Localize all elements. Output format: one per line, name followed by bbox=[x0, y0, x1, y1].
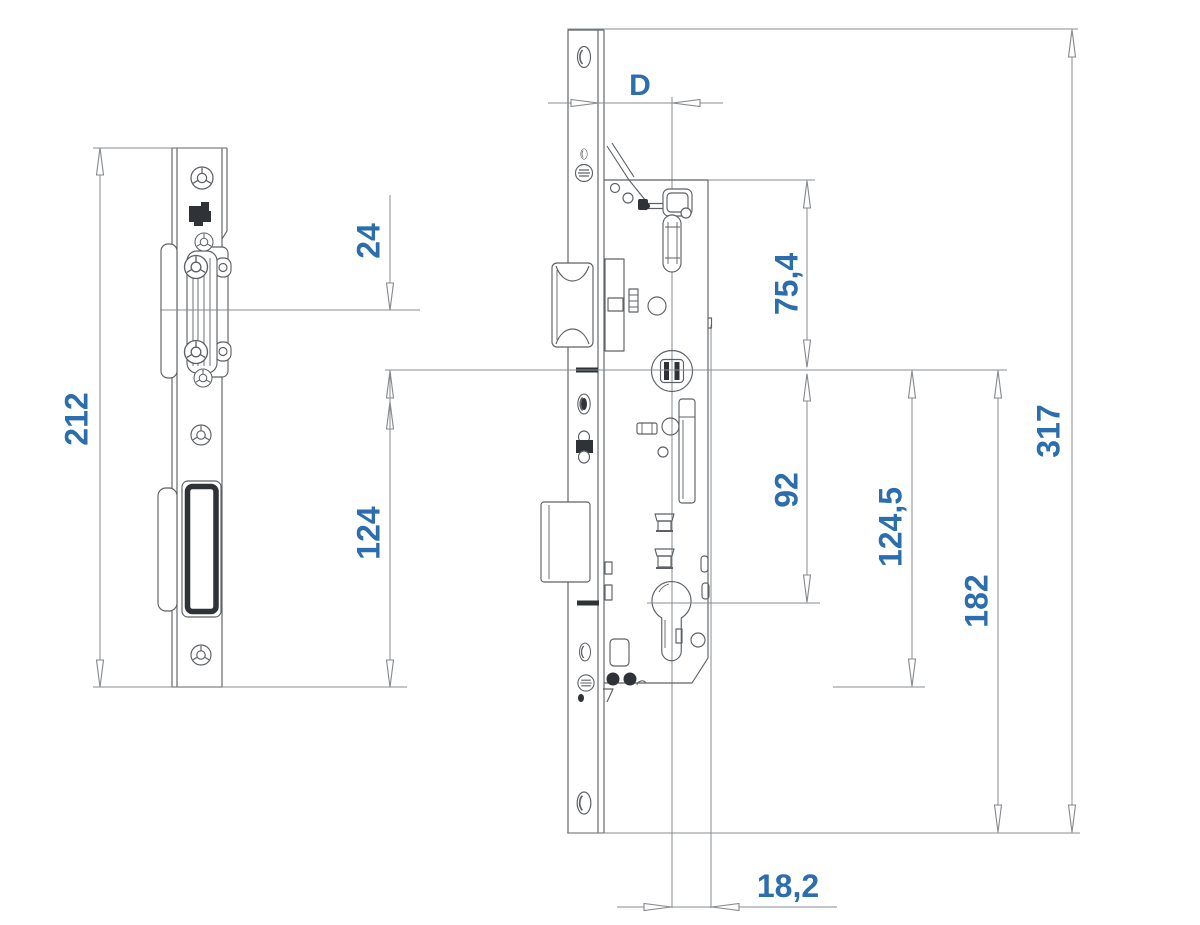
lock-dimension-diagram: 212 24 124 D 75,4 92 124,5 bbox=[0, 0, 1200, 925]
dim-label-axis-to-keep-bottom: 124 bbox=[351, 506, 387, 560]
dimension-keep-height: 212 bbox=[59, 148, 100, 687]
dimension-roller-to-axis: 24 bbox=[351, 195, 390, 455]
keep-lower-flange bbox=[158, 488, 177, 611]
link-rod bbox=[648, 204, 664, 209]
fixing-screw-hole bbox=[691, 633, 705, 647]
keep-upper-flange bbox=[161, 244, 177, 378]
keep-screw-roller-lower-small bbox=[194, 369, 212, 387]
keep-screw-roller-lower bbox=[185, 341, 208, 364]
dim-label-case-top-to-axis: 75,4 bbox=[769, 253, 805, 315]
strike-plate-view bbox=[158, 148, 231, 687]
faceplate-screw-upper bbox=[576, 165, 593, 182]
keep-screw-bottom bbox=[191, 645, 211, 665]
keep-screw-roller-upper-small bbox=[195, 233, 213, 251]
dimension-cylinder-to-edge: 18,2 bbox=[617, 868, 837, 907]
dim-label-roller-to-axis: 24 bbox=[351, 223, 387, 259]
faceplate-clamp-fitting bbox=[576, 431, 593, 463]
keep-screw-top bbox=[191, 167, 213, 189]
dimension-case-top-to-axis: 75,4 bbox=[769, 181, 807, 367]
faceplate-slot-bottom bbox=[577, 792, 591, 814]
lever-pivot-2 bbox=[623, 193, 633, 203]
dim-label-plate-height: 317 bbox=[1031, 404, 1067, 457]
euro-cylinder-hole bbox=[652, 582, 691, 661]
faceplate-screw-lower bbox=[578, 675, 594, 691]
faceplate-dot bbox=[578, 694, 584, 702]
case-edge-tab-1 bbox=[701, 556, 708, 572]
dim-label-cylinder-to-edge: 18,2 bbox=[757, 868, 819, 904]
latch-spring bbox=[629, 289, 638, 312]
adjuster-rod-detail bbox=[642, 423, 652, 434]
mounting-slot bbox=[610, 639, 629, 666]
latch-spring-retainer bbox=[608, 298, 623, 311]
faceplate-hole-small bbox=[581, 149, 588, 160]
lever-pivot-1 bbox=[611, 184, 620, 193]
dimension-axis-to-keep-bottom: 124 bbox=[351, 370, 390, 687]
latch-bolt bbox=[552, 263, 593, 347]
rivet-2 bbox=[624, 673, 637, 686]
faceplate-slot-lower bbox=[579, 643, 590, 661]
case-left-tab-2 bbox=[605, 585, 612, 600]
dimension-axis-to-cylinder: 92 bbox=[769, 374, 807, 602]
keep-clamp-fitting bbox=[189, 202, 211, 226]
latch-cam bbox=[648, 297, 666, 315]
dimension-axis-to-plate-bottom: 182 bbox=[959, 371, 998, 832]
case-left-tab-1 bbox=[605, 562, 612, 574]
drive-rack-detail bbox=[679, 417, 695, 499]
dim-label-axis-to-plate-bottom: 182 bbox=[959, 574, 995, 627]
keep-screw-roller-upper bbox=[185, 256, 208, 279]
lock-body-view bbox=[541, 30, 712, 833]
dimension-plate-height: 317 bbox=[1031, 30, 1072, 832]
spring-box-1 bbox=[655, 514, 674, 531]
link-nub bbox=[644, 203, 650, 209]
spring-box-2 bbox=[655, 549, 674, 568]
dim-label-axis-to-ref: 124,5 bbox=[873, 487, 909, 567]
latch-spring-coils bbox=[629, 295, 638, 307]
faceplate-slot-mid-core bbox=[581, 398, 587, 410]
keep-screw-mid bbox=[191, 425, 211, 445]
dimension-annotations: 212 24 124 D 75,4 92 124,5 bbox=[59, 30, 1072, 907]
capsule-side-pin bbox=[681, 208, 691, 218]
rivet-1 bbox=[607, 673, 620, 686]
small-pin bbox=[658, 447, 668, 457]
dimension-axis-to-ref: 124,5 bbox=[873, 371, 912, 686]
drive-rack-plate bbox=[679, 399, 695, 503]
dimension-backset: D bbox=[548, 69, 723, 103]
axis-dash-cylinder bbox=[577, 601, 599, 606]
deadbolt bbox=[541, 502, 590, 582]
dim-label-backset: D bbox=[629, 69, 651, 102]
dim-label-keep-height: 212 bbox=[59, 392, 95, 445]
latch-pocket bbox=[188, 487, 217, 612]
adjuster-rod bbox=[637, 423, 657, 434]
pin-capsule bbox=[663, 215, 681, 272]
faceplate-slot-top bbox=[578, 47, 591, 68]
dim-label-axis-to-cylinder: 92 bbox=[769, 472, 805, 508]
technical-drawing-canvas: 212 24 124 D 75,4 92 124,5 bbox=[0, 0, 1200, 925]
gear-wheel bbox=[662, 418, 679, 435]
